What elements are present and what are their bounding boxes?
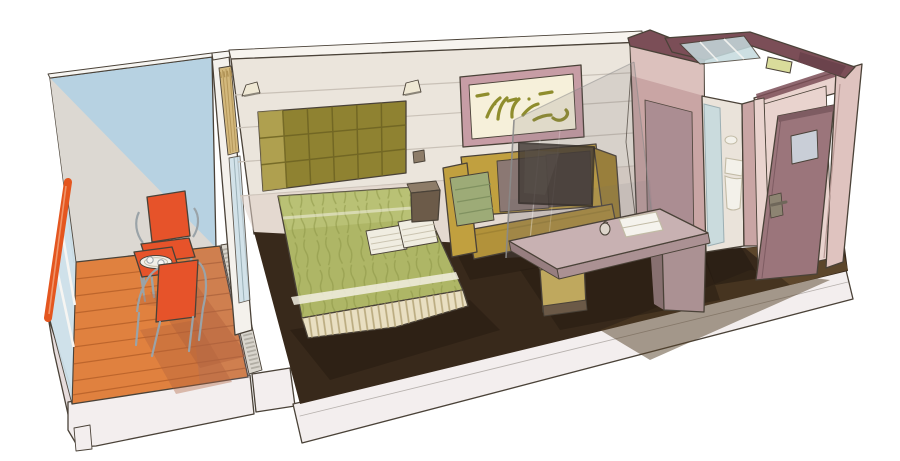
- kettle: [600, 223, 610, 235]
- toilet-tank: [725, 158, 743, 176]
- throw-blanket: [450, 172, 494, 226]
- chair-near-back: [156, 260, 198, 322]
- shower-glass: [704, 104, 724, 246]
- nightstand: [407, 181, 440, 222]
- cabin-cutaway-illustration: [0, 0, 900, 461]
- toilet-bowl: [725, 176, 742, 210]
- nightstand-front: [411, 190, 440, 222]
- art-dot-1: [527, 97, 530, 100]
- ceiling-light: [766, 57, 792, 73]
- light-switch: [413, 150, 425, 163]
- bathroom-doorway: [702, 96, 744, 252]
- sink: [725, 136, 737, 144]
- chair-far-back: [147, 191, 190, 242]
- cup-1: [147, 257, 153, 263]
- hull-leg: [74, 425, 92, 451]
- tv-panel: [519, 143, 594, 206]
- art-dot-2: [494, 103, 497, 106]
- entrance: [754, 64, 862, 280]
- illustration-canvas: [0, 0, 900, 461]
- door-mirror: [791, 130, 818, 164]
- hull-pillar: [252, 368, 295, 412]
